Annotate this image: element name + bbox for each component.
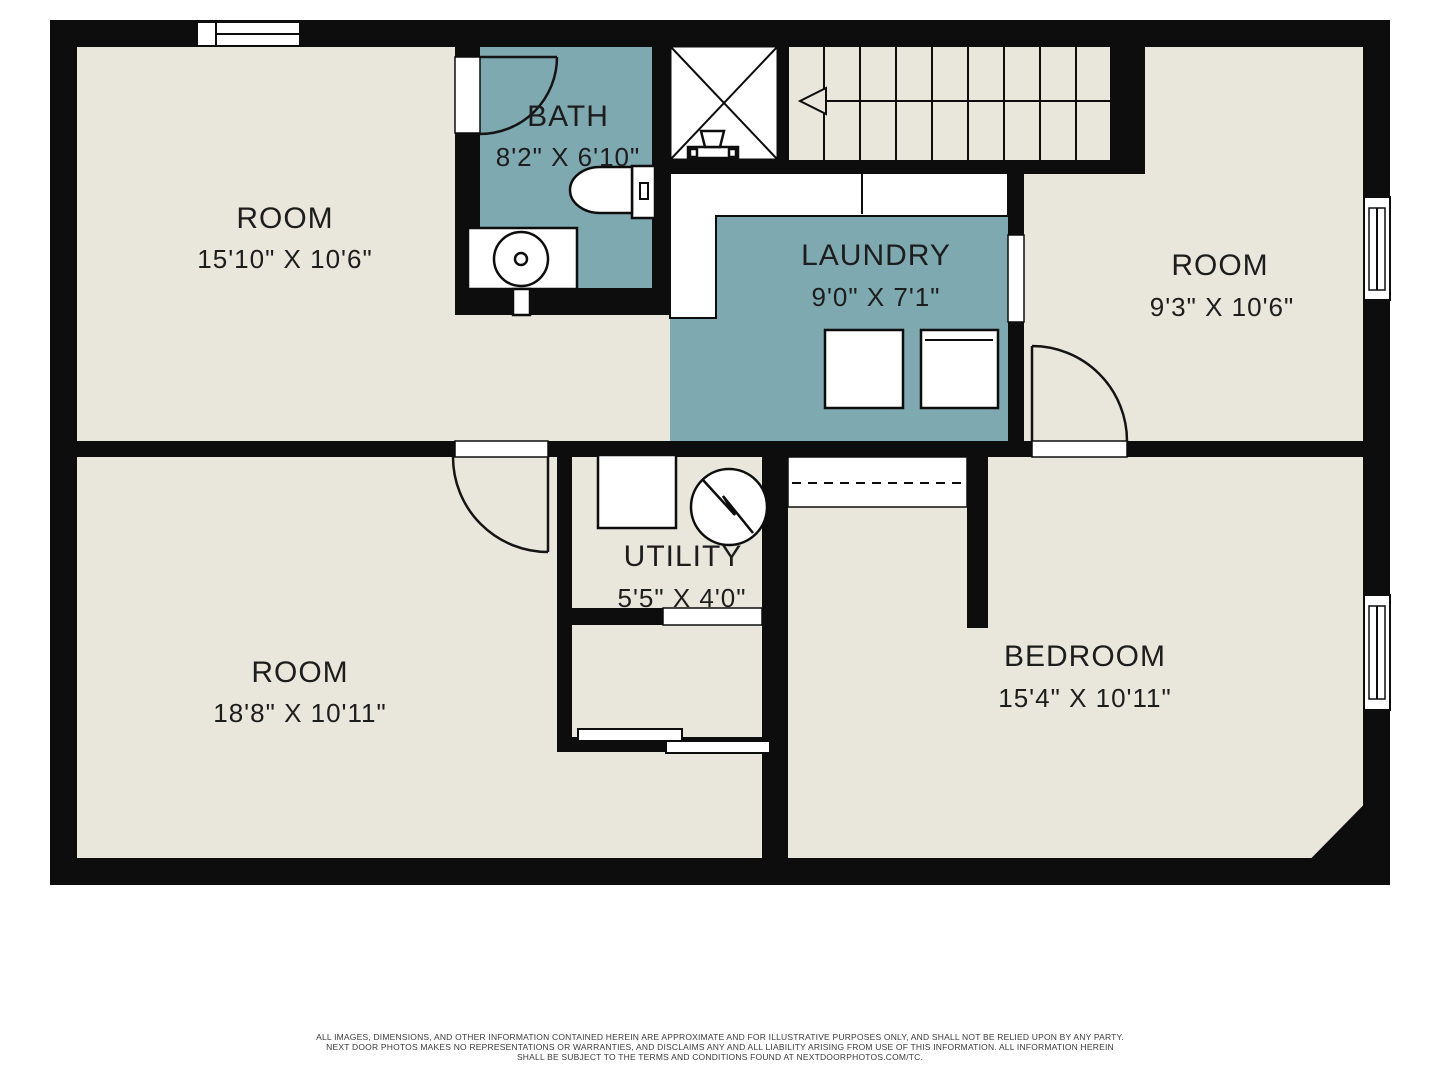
utility-label: UTILITY bbox=[624, 540, 743, 573]
washer bbox=[825, 330, 903, 408]
bedroom-closet bbox=[788, 457, 967, 507]
bath-label: BATH bbox=[527, 100, 609, 133]
footer-line-2: NEXT DOOR PHOTOS MAKES NO REPRESENTATION… bbox=[326, 1042, 1114, 1052]
room-right-label: ROOM bbox=[1171, 249, 1268, 282]
toilet bbox=[570, 166, 655, 218]
room-top-left-dims: 15'10" X 10'6" bbox=[197, 244, 372, 274]
dryer bbox=[921, 330, 998, 408]
shower-head bbox=[701, 131, 724, 147]
faucet bbox=[513, 289, 530, 315]
drain bbox=[515, 253, 527, 265]
laundry-pass-opening bbox=[1008, 235, 1024, 322]
bedroom-dims: 15'4" X 10'11" bbox=[998, 683, 1171, 713]
flush-button bbox=[640, 183, 648, 199]
bottom-room-door-opening bbox=[455, 441, 548, 457]
bath-dims: 8'2" X 6'10" bbox=[496, 142, 640, 172]
right-room-door-opening bbox=[1032, 441, 1127, 457]
footer-line-1: ALL IMAGES, DIMENSIONS, AND OTHER INFORM… bbox=[316, 1032, 1124, 1042]
room-bottom-left-label: ROOM bbox=[251, 656, 348, 689]
floorplan-page: ROOM 15'10" X 10'6" BATH 8'2" X 6'10" LA… bbox=[0, 0, 1440, 1080]
footer-disclaimer: ALL IMAGES, DIMENSIONS, AND OTHER INFORM… bbox=[316, 1032, 1124, 1062]
window-right-top bbox=[1364, 197, 1390, 300]
footer-line-3: SHALL BE SUBJECT TO THE TERMS AND CONDIT… bbox=[517, 1052, 923, 1062]
window-right-bottom bbox=[1364, 595, 1390, 710]
room-top-left-label: ROOM bbox=[236, 202, 333, 235]
water-heater bbox=[691, 469, 767, 545]
shower bbox=[670, 46, 778, 160]
room-right-dims: 9'3" X 10'6" bbox=[1150, 292, 1294, 322]
furnace bbox=[598, 455, 676, 528]
bedroom-label: BEDROOM bbox=[1004, 640, 1166, 673]
laundry-label: LAUNDRY bbox=[801, 239, 951, 272]
floorplan-svg: ROOM 15'10" X 10'6" BATH 8'2" X 6'10" LA… bbox=[0, 0, 1440, 1080]
room-bottom-left-dims: 18'8" X 10'11" bbox=[213, 698, 386, 728]
window-top-left bbox=[197, 22, 300, 46]
bath-door-opening bbox=[455, 57, 480, 133]
utility-dims: 5'5" X 4'0" bbox=[617, 583, 746, 613]
laundry-dims: 9'0" X 7'1" bbox=[811, 282, 940, 312]
